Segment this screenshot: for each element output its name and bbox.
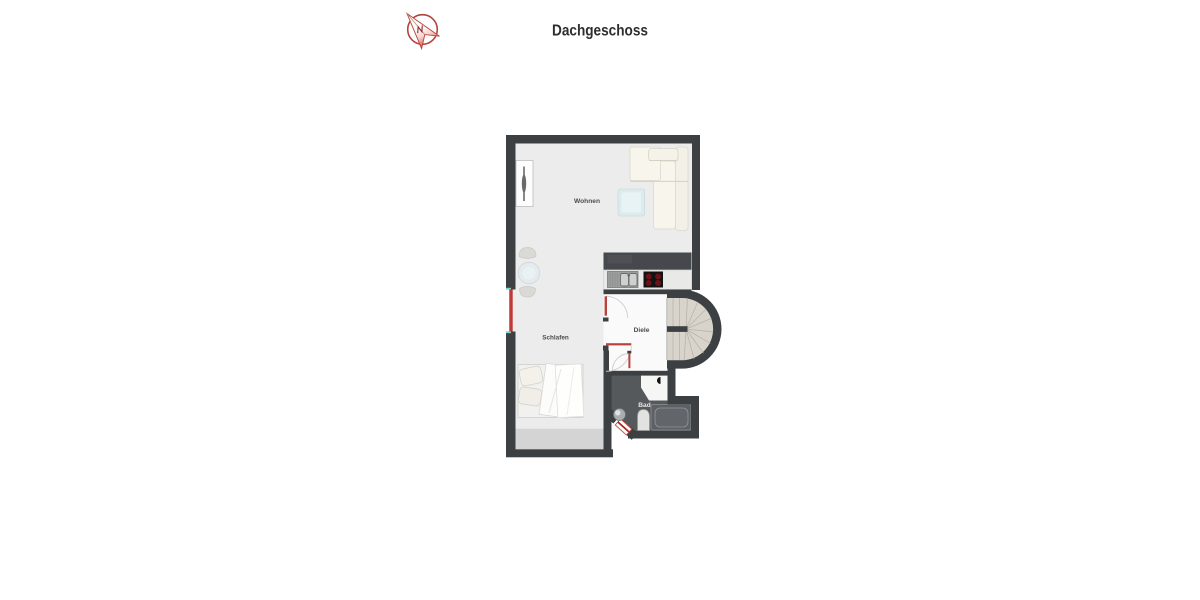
svg-text:Schlafen: Schlafen <box>542 334 569 341</box>
svg-text:Wohnen: Wohnen <box>574 198 600 205</box>
svg-text:Diele: Diele <box>634 327 650 334</box>
svg-text:Dachgeschoss: Dachgeschoss <box>552 23 648 40</box>
svg-text:Bad: Bad <box>638 402 650 409</box>
